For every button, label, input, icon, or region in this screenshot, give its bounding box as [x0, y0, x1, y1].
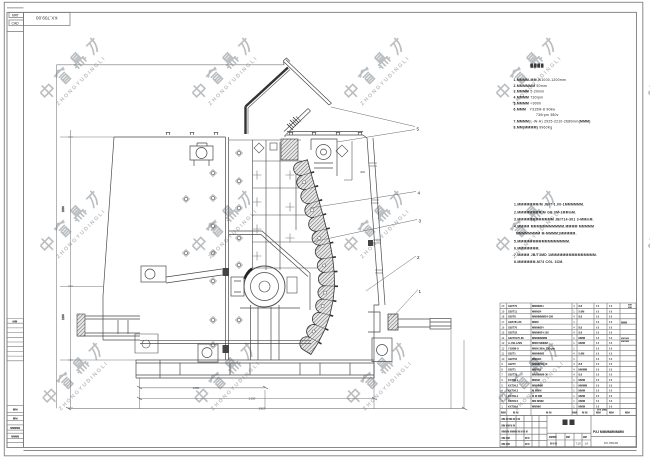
svg-text:5: 5 [417, 127, 420, 132]
svg-text:MMM24: MMM24 [532, 357, 542, 361]
svg-text:8.8: 8.8 [609, 311, 613, 313]
svg-text:MMM16: MMM16 [532, 367, 542, 371]
svg-text:1: 1 [501, 404, 503, 408]
svg-text:8.8: 8.8 [609, 396, 613, 398]
svg-text:MM MM: MM MM [502, 438, 510, 440]
svg-text:4: 4 [418, 191, 421, 196]
svg-text:GB/T70: GB/T70 [508, 325, 518, 329]
svg-text:8.8: 8.8 [609, 359, 613, 361]
svg-text:A-YBLL/NN: A-YBLL/NN [508, 341, 522, 345]
svg-text:4: 4 [573, 304, 575, 308]
svg-text:8.8: 8.8 [596, 369, 600, 371]
svg-text:MMMM: MMMM [549, 437, 557, 439]
svg-text:8.8: 8.8 [579, 362, 583, 366]
svg-text:MM MM M M: MM MM M M [502, 425, 515, 427]
svg-text:6.MMMMMMM.: 6.MMMMMMM. [514, 246, 540, 250]
svg-text:1080: 1080 [193, 386, 200, 390]
svg-text:4.MMMM MMMMMMMMMMM.MMMM MMMMM: 4.MMMM MMMMMMMMMMM.MMMM MMMMM [514, 225, 594, 229]
svg-text:1: 1 [573, 309, 575, 313]
svg-text:MM M MM M M M: MM M MM M M M [502, 419, 521, 421]
svg-text:MMMMM: MMMMM [10, 427, 20, 430]
svg-text:8.8: 8.8 [609, 343, 613, 345]
svg-text:MM MM: MM MM [621, 338, 629, 340]
svg-text:8.8: 8.8 [609, 322, 613, 324]
svg-text:1:6: 1:6 [585, 442, 589, 446]
svg-text:M M: M M [582, 410, 588, 414]
svg-text:MMMMMMM: MMMMMMM [532, 336, 547, 340]
svg-text:MM MMM: MM MMM [532, 399, 544, 403]
svg-text:MMMMMMMM M-MMMM1MMMMM.: MMMMMMMM M-MMMM1MMMMM. [516, 232, 577, 236]
svg-text:4: 4 [573, 373, 575, 377]
svg-text:MMMM24-100: MMMM24-100 [532, 331, 549, 335]
svg-text:4.MMMM 730rpm: 4.MMMM 730rpm [514, 96, 544, 100]
svg-text:8.8: 8.8 [596, 385, 600, 387]
svg-text:2680: 2680 [61, 206, 65, 212]
svg-text:8.MMMMMM-M73 CGL 3CM.: 8.MMMMMM-M73 CGL 3CM. [514, 260, 564, 264]
svg-text:MMM MMMM: MMM MMMM [532, 341, 548, 345]
svg-text:GB/T11: GB/T11 [508, 309, 517, 313]
svg-text:M MMM: M MMM [532, 389, 541, 393]
svg-text:8.8: 8.8 [579, 315, 583, 319]
svg-text:8.8: 8.8 [609, 333, 613, 335]
svg-text:13: 13 [501, 341, 504, 345]
svg-text:1: 1 [573, 357, 575, 361]
svg-text:11: 11 [501, 352, 504, 356]
svg-text:M M: M M [525, 444, 530, 446]
svg-text:8.8: 8.8 [596, 401, 600, 403]
svg-text:16: 16 [501, 325, 504, 329]
svg-text:M M: M M [546, 410, 552, 414]
svg-text:3.MMMM 5-20mm: 3.MMMM 5-20mm [514, 90, 545, 94]
svg-text:8.8: 8.8 [596, 348, 600, 350]
svg-text:15: 15 [501, 331, 504, 335]
svg-text:730rpm 380v: 730rpm 380v [536, 113, 559, 117]
svg-text:MMM: MMM [579, 378, 585, 382]
svg-text:MMMMM6-30: MMMMM6-30 [532, 373, 549, 377]
svg-text:GB5781-86: GB5781-86 [508, 320, 522, 324]
svg-text:8.8: 8.8 [596, 391, 600, 393]
svg-text:8.8: 8.8 [609, 354, 613, 356]
svg-text:8.8: 8.8 [609, 348, 613, 350]
svg-text:4: 4 [573, 352, 575, 356]
svg-text:MM: MM [609, 410, 614, 414]
svg-text:7:10: 7:10 [576, 442, 582, 446]
svg-text:8.8: 8.8 [596, 380, 600, 382]
svg-text:MM: MM [625, 410, 630, 414]
svg-text:M M MM: M M MM [532, 394, 542, 398]
svg-text:1: 1 [573, 336, 575, 340]
svg-text:M M (MM): M M (MM) [597, 410, 607, 412]
svg-text:19: 19 [501, 309, 504, 313]
svg-text:8.8: 8.8 [609, 338, 613, 340]
svg-text:8.8: 8.8 [609, 327, 613, 329]
svg-text:5.MMMM <90t/h: 5.MMMM <90t/h [514, 102, 542, 106]
svg-text:Y180M-8: Y180M-8 [508, 346, 519, 350]
svg-text:4: 4 [501, 389, 503, 393]
svg-text:MM MM: MM MM [621, 341, 629, 343]
svg-text:1: 1 [573, 394, 575, 398]
svg-text:8.8: 8.8 [609, 385, 613, 387]
svg-text:2.MMMMMM 50mm: 2.MMMMMM 50mm [514, 84, 547, 88]
svg-text:1: 1 [573, 404, 575, 408]
svg-text:8.8: 8.8 [596, 306, 600, 308]
svg-text:8.8: 8.8 [596, 364, 600, 366]
svg-text:MMM: MMM [579, 394, 585, 398]
svg-text:MM: MM [566, 437, 570, 439]
svg-text:5.6M: 5.6M [579, 352, 585, 356]
svg-text:8.8: 8.8 [579, 373, 583, 377]
svg-text:2925: 2925 [259, 407, 266, 411]
svg-text:7.MMMM JB/T3MD 1MMMMMMMMMMMMMM: 7.MMMM JB/T3MD 1MMMMMMMMMMMMMMM. [514, 253, 597, 257]
svg-text:GB/T70: GB/T70 [508, 304, 518, 308]
svg-text:8: 8 [501, 367, 503, 371]
svg-text:4: 4 [573, 362, 575, 366]
svg-text:8.8: 8.8 [579, 331, 583, 335]
svg-text:MMMM: MMMM [579, 383, 588, 387]
svg-text:3.MMMMMMMMMMMM JB/T14-301 3-MM: 3.MMMMMMMMMMMM JB/T14-301 3-MMmM. [514, 217, 594, 221]
svg-text:1.MMMM-MM W1000-1200mm: 1.MMMM-MM W1000-1200mm [514, 78, 566, 82]
svg-text:1: 1 [573, 389, 575, 393]
svg-text:1: 1 [573, 383, 575, 387]
svg-text:7.MMMM(L-W-H) 2925-2210-2680mm: 7.MMMM(L-W-H) 2925-2210-2680mm(MMM) [514, 119, 591, 123]
svg-text:GB/T8: GB/T8 [508, 315, 516, 319]
svg-text:MMMM16-45: MMMM16-45 [532, 362, 548, 366]
svg-text:4: 4 [573, 325, 575, 329]
svg-text:MMM: MMM [621, 321, 627, 324]
svg-text:8.8: 8.8 [609, 406, 613, 408]
svg-text:MMM: MMM [579, 336, 585, 340]
svg-text:MRT: MRT [12, 14, 19, 18]
svg-text:MMMM: MMMM [579, 367, 588, 371]
svg-text:8.8: 8.8 [609, 317, 613, 319]
svg-text:6: 6 [501, 378, 503, 382]
svg-text:MM: MM [13, 417, 18, 421]
svg-text:6.MMM Y315M-8 90kw: 6.MMM Y315M-8 90kw [514, 108, 556, 112]
svg-text:1: 1 [419, 289, 422, 294]
svg-text:KX709.5: KX709.5 [508, 399, 519, 403]
svg-text:GB/T78: GB/T78 [508, 373, 518, 377]
svg-text:5: 5 [501, 383, 503, 387]
svg-text:GB/T1: GB/T1 [508, 367, 516, 371]
svg-text:MMMMM: MMMMM [532, 383, 543, 387]
svg-text:8.8: 8.8 [596, 354, 600, 356]
svg-text:MMM: MMM [579, 404, 585, 408]
svg-text:MM: MM [628, 307, 632, 309]
svg-text:MMMMM2: MMMMM2 [532, 352, 545, 356]
svg-text:GB/T52: GB/T52 [508, 331, 518, 335]
svg-text:3: 3 [419, 219, 422, 224]
svg-text:KX709.3: KX709.3 [508, 389, 519, 393]
svg-text:CAD: CAD [12, 21, 20, 25]
svg-text:5.6M: 5.6M [579, 309, 585, 313]
svg-text:18: 18 [501, 315, 504, 319]
svg-text:2150: 2150 [249, 397, 256, 401]
svg-text:MM: MM [13, 408, 18, 412]
svg-text:8.8: 8.8 [596, 327, 600, 329]
svg-text:8.8: 8.8 [596, 338, 600, 340]
svg-text:8.8: 8.8 [596, 317, 600, 319]
svg-text:MMMM24: MMMM24 [532, 325, 544, 329]
svg-text:MMM: MMM [579, 341, 585, 345]
svg-text:1.MMMMMMM/M JB/T 1.00-1MMMMMM.: 1.MMMMMMM/M JB/T 1.00-1MMMMMM. [514, 203, 584, 207]
svg-text:MMM2: MMM2 [532, 378, 540, 382]
svg-text:MM: MM [13, 320, 18, 324]
svg-text:KX709.6: KX709.6 [508, 404, 519, 408]
svg-text:8.MM(MMMM) 9960Kg: 8.MM(MMMM) 9960Kg [514, 125, 553, 129]
svg-text:PXJ MMMMMMMMM: PXJ MMMMMMMMM [593, 430, 624, 434]
svg-text:8.8: 8.8 [596, 375, 600, 377]
svg-text:MM MM: MM MM [502, 444, 510, 446]
svg-text:MMMM24: MMMM24 [532, 304, 544, 308]
svg-text:MM: MM [583, 437, 587, 439]
svg-text:1: 1 [573, 378, 575, 382]
svg-text:MMM: MMM [579, 389, 585, 393]
svg-text:8.8: 8.8 [609, 391, 613, 393]
svg-text:KX709.2: KX709.2 [508, 383, 519, 387]
svg-text:8.8: 8.8 [609, 306, 613, 308]
svg-text:8.8: 8.8 [596, 343, 600, 345]
svg-text:9: 9 [501, 362, 503, 366]
svg-text:400: 400 [360, 170, 365, 174]
svg-text:M M: M M [513, 410, 519, 414]
svg-text:8.8: 8.8 [609, 364, 613, 366]
svg-text:GB/T1: GB/T1 [508, 352, 516, 356]
svg-text:MM: MM [572, 410, 577, 414]
svg-text:7: 7 [501, 373, 503, 377]
svg-text:MM: MM [628, 305, 632, 307]
svg-text:M M: M M [525, 438, 530, 440]
svg-text:5.MMMMMMMMMMMMMMMMM.: 5.MMMMMMMMMMMMMMMMM. [514, 239, 570, 243]
svg-text:4: 4 [573, 367, 575, 371]
svg-text:MM: MM [501, 410, 506, 414]
svg-text:GB/T5: GB/T5 [508, 362, 516, 366]
svg-text:GB/T52: GB/T52 [508, 357, 518, 361]
svg-text:GB/T6170-86: GB/T6170-86 [508, 336, 524, 340]
svg-text:MMMM: MMMM [11, 435, 19, 438]
svg-text:8.8: 8.8 [609, 369, 613, 371]
svg-text:8.8: 8.8 [596, 396, 600, 398]
svg-text:KX709.4: KX709.4 [508, 394, 519, 398]
svg-text:8.8: 8.8 [596, 406, 600, 408]
svg-text:1300: 1300 [61, 314, 65, 320]
svg-text:4: 4 [573, 331, 575, 335]
svg-text:20: 20 [501, 304, 504, 308]
svg-text:KX.709.00: KX.709.00 [36, 15, 58, 20]
svg-text:MMM24: MMM24 [532, 309, 542, 313]
svg-text:1: 1 [573, 341, 575, 345]
svg-text:8.8: 8.8 [609, 380, 613, 382]
svg-text:KX.709.00: KX.709.00 [604, 441, 618, 445]
svg-text:2.MMMMMMMM/M GB.0M-1MMmM.: 2.MMMMMMMM/M GB.0M-1MMmM. [514, 210, 576, 214]
svg-text:8.8: 8.8 [609, 375, 613, 377]
svg-text:KX709.1: KX709.1 [508, 378, 519, 382]
svg-text:1: 1 [573, 346, 575, 350]
svg-text:8.8: 8.8 [596, 311, 600, 313]
svg-text:MMM: MMM [579, 399, 585, 403]
svg-text:8.8: 8.8 [596, 333, 600, 335]
svg-text:2: 2 [417, 255, 420, 260]
svg-text:MMM 380v 730rpm: MMM 380v 730rpm [532, 346, 556, 350]
svg-text:17: 17 [501, 320, 504, 324]
svg-text:MMM: MMM [532, 320, 538, 324]
svg-text:8.8: 8.8 [579, 304, 583, 308]
svg-text:8.8: 8.8 [596, 322, 600, 324]
svg-text:4: 4 [573, 315, 575, 319]
svg-text:8.8: 8.8 [596, 359, 600, 361]
svg-text:1: 1 [573, 320, 575, 324]
svg-text:8.8: 8.8 [609, 401, 613, 403]
svg-text:MMMM: MMMM [532, 404, 541, 408]
svg-text:1: 1 [573, 399, 575, 403]
svg-text:12: 12 [501, 346, 504, 350]
svg-text:10: 10 [501, 357, 504, 361]
svg-text:8.8: 8.8 [579, 325, 583, 329]
svg-text:14: 14 [501, 336, 504, 340]
svg-text:MMMMMM24-180: MMMMMM24-180 [532, 315, 554, 319]
